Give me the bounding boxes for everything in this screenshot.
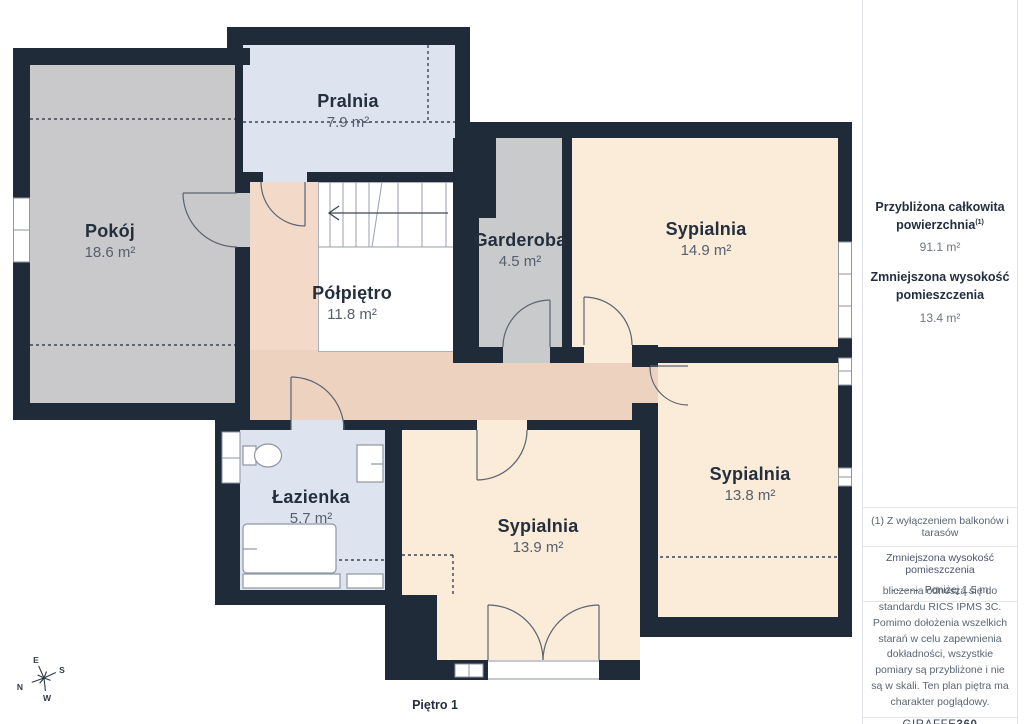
wall [13,48,250,65]
room-label-sypialnia-1: Sypialnia 14.9 m² [666,219,747,259]
room-area: 14.9 m² [666,242,747,259]
door-opening [235,193,250,247]
area-summary: Przybliżona całkowita powierzchnia(1) 91… [863,198,1017,339]
room-area: 4.5 m² [474,253,567,270]
brand-suffix: 360 [957,719,978,724]
room-label-pralnia: Pralnia 7.9 m² [317,91,378,131]
room-label-garderoba: Garderoba 4.5 m² [474,230,567,270]
sidebar: Przybliżona całkowita powierzchnia(1) 91… [862,0,1018,724]
wall [235,48,243,172]
room-name: Garderoba [474,230,567,251]
total-area-footnote-marker: (1) [975,219,984,226]
room-name: Sypialnia [666,219,747,240]
balcony-door-opening [488,660,599,680]
door-opening [291,420,343,430]
compass-n: N [17,682,23,692]
door-opening [584,347,632,363]
wall [13,48,30,420]
room-label-sypialnia-2: Sypialnia 13.8 m² [710,464,791,504]
stairwell [318,182,455,352]
brand-logo: GIRAFFE360 [902,717,977,724]
reduced-height-label: Zmniejszona wysokość pomieszczenia [863,268,1017,304]
room-garderoba-floor [496,138,562,218]
room-area: 18.6 m² [85,244,136,261]
compass-w: W [43,693,52,703]
total-area-label: Przybliżona całkowita powierzchnia(1) [863,198,1017,234]
door-opening [263,172,307,182]
wall [227,27,470,45]
room-area: 13.9 m² [498,539,579,556]
wall [385,420,402,605]
room-name: Łazienka [272,487,350,508]
wall [453,138,496,218]
disclaimer-text: bliczenia odnoszą się do standardu RICS … [871,584,1009,710]
compass-icon: E S N W [17,655,65,703]
floor-title: Piętro 1 [412,698,458,712]
room-name: Pralnia [317,91,378,112]
room-label-lazienka: Łazienka 5.7 m² [272,487,350,527]
compass-s: S [59,665,65,675]
wall [640,427,658,617]
total-area-value: 91.1 m² [863,240,1017,254]
door-opening [477,420,527,430]
room-area: 13.8 m² [710,487,791,504]
footnote-box: (1) Z wyłączeniem balkonów i tarasów [863,507,1017,546]
room-label-polpietro: Półpiętro 11.8 m² [312,283,392,323]
room-area: 5.7 m² [272,510,350,527]
disclaimer-box: bliczenia odnoszą się do standardu RICS … [863,601,1017,718]
room-name: Sypialnia [710,464,791,485]
wall [640,617,852,637]
floorplan-canvas: E S N W Pokój 18.6 m² Pralnia 7.9 m² Pół… [0,0,862,724]
wall [240,420,250,430]
room-name: Sypialnia [498,516,579,537]
floorplan-page: E S N W Pokój 18.6 m² Pralnia 7.9 m² Pół… [0,0,1024,724]
room-name: Pokój [85,221,136,242]
room-area: 11.8 m² [312,306,392,323]
compass-e: E [33,655,39,665]
legend-title: Zmniejszona wysokość pomieszczenia [863,552,1017,576]
wall [838,122,852,637]
footnote-text: (1) Z wyłączeniem balkonów i tarasów [863,515,1017,539]
total-area-label-text: Przybliżona całkowita powierzchnia [875,200,1004,232]
door-opening [632,367,658,403]
wall [215,420,240,605]
wall [460,122,852,138]
room-label-pokoj: Pokój 18.6 m² [85,221,136,261]
room-label-sypialnia-3: Sypialnia 13.9 m² [498,516,579,556]
door-opening [503,347,550,363]
wall [13,403,250,420]
room-area: 7.9 m² [317,114,378,131]
reduced-height-value: 13.4 m² [863,311,1017,325]
room-name: Półpiętro [312,283,392,304]
wall [215,590,402,605]
brand-name: GIRAFFE [902,719,956,724]
